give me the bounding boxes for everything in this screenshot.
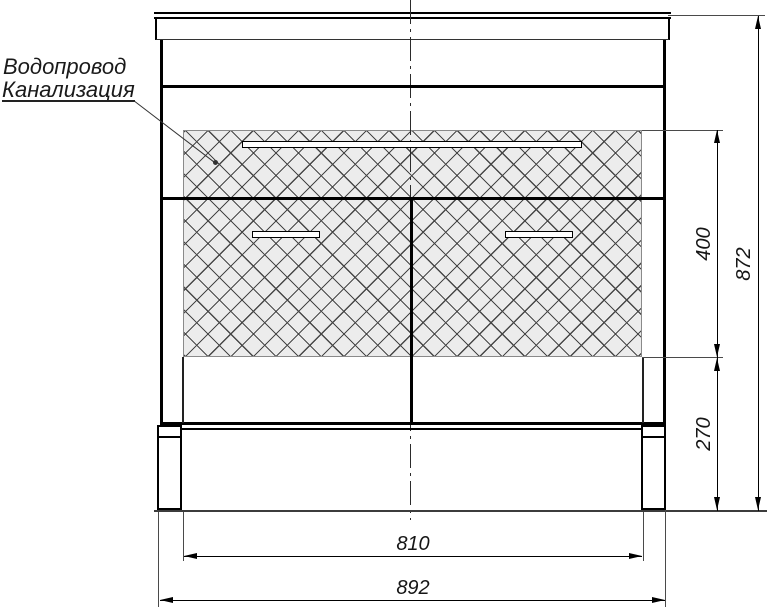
dimension-line-400 — [717, 130, 718, 357]
arrow-810-right — [629, 553, 642, 559]
apron-divider-line — [160, 85, 666, 88]
extension-line-892-right — [665, 510, 666, 607]
extension-line-892-left — [158, 512, 159, 607]
arrow-892-right — [652, 597, 665, 603]
plinth-recess-line — [182, 428, 643, 430]
countertop-front-edge — [154, 12, 671, 19]
extension-line-top-right — [668, 15, 765, 16]
right-door-handle — [505, 231, 573, 238]
callout-underline — [2, 100, 135, 102]
callout-water-supply: Водопровод — [3, 56, 126, 78]
dimension-line-810 — [184, 556, 642, 557]
right-leg — [641, 425, 666, 510]
arrow-810-left — [184, 553, 197, 559]
drawer-door-divider-line — [160, 197, 666, 200]
door-gap-line — [410, 197, 413, 425]
dimension-line-892 — [160, 600, 665, 601]
extension-line-810-right — [643, 512, 644, 561]
dim-label-270: 270 — [694, 417, 714, 450]
left-door-handle — [252, 231, 320, 238]
dim-label-892: 892 — [333, 578, 493, 598]
arrow-400-bottom — [714, 344, 720, 357]
callout-sewerage: Канализация — [2, 79, 135, 101]
vanity-installation-drawing: Водопровод Канализация 400 270 872 810 8… — [0, 0, 768, 608]
arrow-270-top — [714, 358, 720, 371]
dim-label-810: 810 — [333, 534, 493, 554]
right-leg-foot-line — [643, 436, 664, 438]
arrow-872-bottom — [755, 497, 761, 510]
arrow-270-bottom — [714, 497, 720, 510]
floor-line — [154, 510, 767, 512]
extension-line-zone-bottom — [642, 357, 723, 358]
dim-label-872: 872 — [734, 247, 754, 280]
dimension-line-270 — [717, 357, 718, 511]
left-leg-foot-line — [159, 436, 180, 438]
arrow-892-left — [160, 597, 173, 603]
dim-label-400: 400 — [694, 227, 714, 260]
callout-leader-dot — [213, 160, 218, 165]
arrow-400-top — [714, 130, 720, 143]
right-door-edge-line — [642, 357, 644, 423]
extension-line-zone-top — [642, 130, 723, 131]
arrow-872-top — [755, 16, 761, 29]
left-leg — [157, 425, 182, 510]
dimension-line-872 — [758, 16, 759, 511]
drawer-handle — [242, 141, 582, 148]
left-door-edge-line — [182, 357, 184, 423]
